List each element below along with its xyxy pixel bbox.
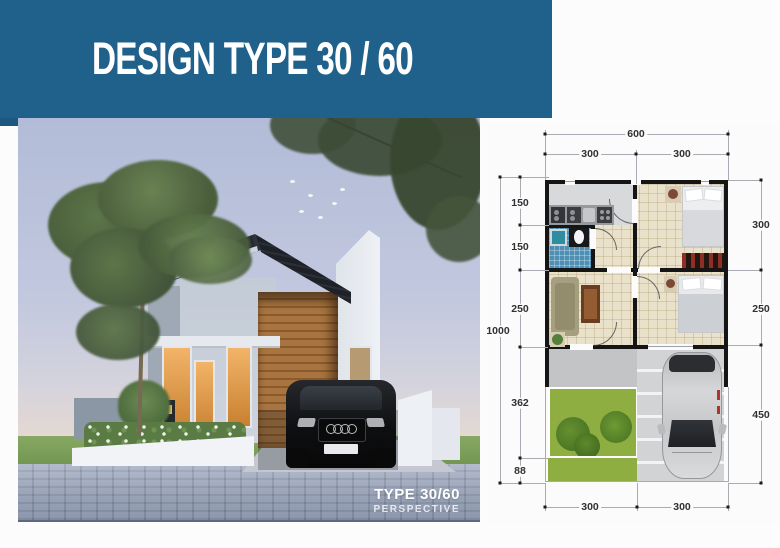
bird xyxy=(340,188,345,191)
dim-left-total: 1000 xyxy=(484,326,511,337)
window-glass-line xyxy=(648,346,693,347)
car-wheel xyxy=(288,448,308,468)
dim-line xyxy=(728,270,762,271)
dim-right-2: 250 xyxy=(750,304,772,315)
slide: DESIGN TYPE 30 / 60 xyxy=(0,0,780,548)
wall-right xyxy=(724,180,728,387)
dim-line xyxy=(728,483,762,484)
wall-middle-vertical-upper xyxy=(633,184,637,268)
dim-line xyxy=(500,177,549,178)
bed xyxy=(682,186,724,247)
bird xyxy=(332,202,337,205)
license-plate xyxy=(324,444,358,454)
bird xyxy=(308,194,313,197)
door-opening xyxy=(607,267,631,273)
dim-top-right: 300 xyxy=(671,149,693,160)
render-caption: TYPE 30/60 PERSPECTIVE xyxy=(373,486,460,515)
palm-plant xyxy=(118,380,170,428)
car-top-view xyxy=(662,352,722,479)
dim-left-1: 150 xyxy=(509,198,531,209)
car-mirror xyxy=(718,423,727,434)
lot-line xyxy=(545,387,546,482)
car-headlight xyxy=(297,418,316,427)
terrace-floor xyxy=(549,349,637,387)
car-taillight xyxy=(717,390,720,400)
window-opening xyxy=(701,179,709,185)
bird xyxy=(318,216,323,219)
fence-right xyxy=(398,390,432,466)
window-opening xyxy=(565,179,575,185)
dim-left-3: 250 xyxy=(509,304,531,315)
bird xyxy=(299,210,304,213)
audi-rings-icon xyxy=(326,424,356,432)
window-opening xyxy=(648,344,693,350)
banner-corner-accent xyxy=(0,118,18,126)
title-banner: DESIGN TYPE 30 / 60 xyxy=(0,0,552,118)
dim-line xyxy=(520,225,549,226)
garden-lawn-strip xyxy=(548,458,638,482)
tree-foliage xyxy=(76,304,160,360)
door-opening-entrance xyxy=(570,344,593,350)
car-windshield xyxy=(300,386,382,410)
dresser xyxy=(682,253,724,268)
garden-bush xyxy=(600,411,632,443)
car-headlight xyxy=(366,418,385,427)
dim-top-total: 600 xyxy=(625,129,647,140)
car-wheel xyxy=(374,448,394,468)
dim-top-left: 300 xyxy=(579,149,601,160)
window-glass-line xyxy=(565,181,575,182)
dim-bottom-left: 300 xyxy=(579,502,601,513)
nightstand xyxy=(665,186,681,203)
dim-line xyxy=(520,458,548,459)
coffee-table xyxy=(581,285,600,323)
bed xyxy=(678,275,724,333)
render-caption-subtitle: PERSPECTIVE xyxy=(373,504,460,515)
lit-window xyxy=(226,346,252,428)
dim-bottom-right: 300 xyxy=(671,502,693,513)
window-glass-line xyxy=(701,181,709,182)
shower-tray xyxy=(550,229,567,246)
dim-right-1: 300 xyxy=(750,220,772,231)
dim-line xyxy=(520,347,548,348)
fence-right-low xyxy=(432,408,460,460)
toilet xyxy=(569,228,589,247)
car-windshield xyxy=(668,420,716,447)
dim-left-4: 362 xyxy=(509,398,531,409)
perspective-render: TYPE 30/60 PERSPECTIVE xyxy=(18,118,480,522)
bird xyxy=(290,180,295,183)
dim-line xyxy=(500,483,545,484)
car-rear-window xyxy=(669,355,715,372)
tree-foliage xyxy=(168,236,252,284)
floor-plan: 600 300 300 150 150 250 362 88 1000 300 … xyxy=(488,125,780,525)
dim-line xyxy=(520,270,549,271)
car-taillight xyxy=(717,406,720,414)
page-title: DESIGN TYPE 30 / 60 xyxy=(92,33,413,85)
car-front-view xyxy=(286,380,396,468)
garden xyxy=(548,387,638,458)
kitchen-counter xyxy=(549,205,614,225)
nightstand xyxy=(664,276,677,292)
dim-left-5: 88 xyxy=(512,466,528,477)
lot-line xyxy=(545,481,729,482)
car-hood-line xyxy=(672,452,712,453)
sofa xyxy=(551,277,579,336)
dim-right-3: 450 xyxy=(750,410,772,421)
garden-bush xyxy=(574,433,600,458)
dim-line xyxy=(728,345,762,346)
potted-plant xyxy=(550,332,565,347)
dim-line xyxy=(728,180,762,181)
lot-line xyxy=(728,387,729,482)
dim-left-2: 150 xyxy=(509,242,531,253)
render-caption-title: TYPE 30/60 xyxy=(373,486,460,503)
